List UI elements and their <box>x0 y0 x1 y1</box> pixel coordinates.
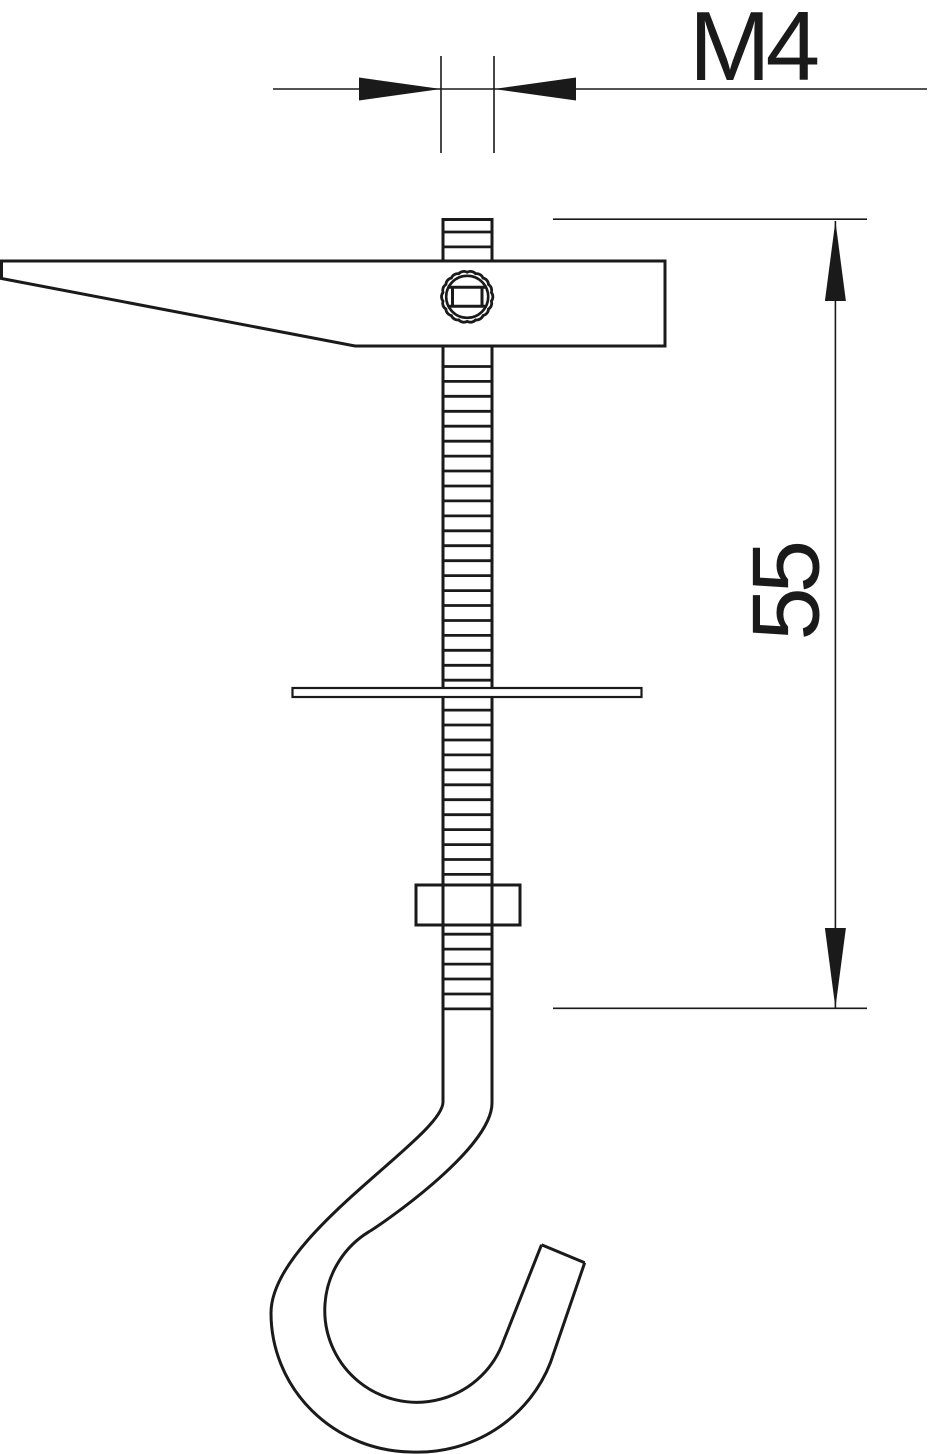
svg-text:55: 55 <box>733 543 840 640</box>
svg-text:M4: M4 <box>689 0 818 101</box>
